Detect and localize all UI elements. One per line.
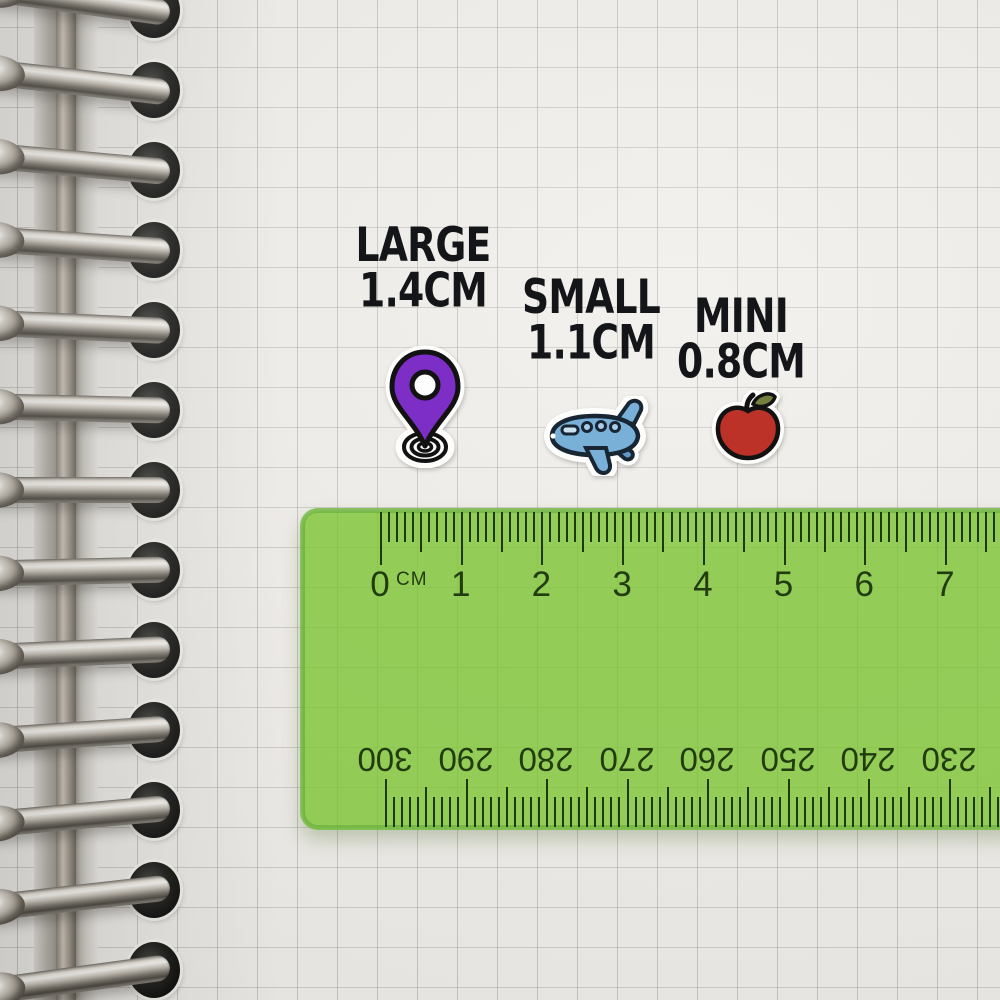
ruler-top-tick [945, 512, 947, 565]
ruler-bottom-tick [522, 797, 524, 827]
ruler-bottom-tick [973, 797, 975, 827]
ruler-bottom-tick [699, 797, 701, 827]
ruler-bottom-tick [570, 797, 572, 827]
ruler-bottom-tick [828, 787, 830, 827]
ruler-bottom-tick [594, 797, 596, 827]
ruler-bottom-tick [932, 797, 934, 827]
ruler-top-tick [590, 512, 592, 542]
ruler-mm-number: 290 [438, 740, 493, 778]
ruler-bottom-tick [667, 787, 669, 827]
ruler-cm-number: 4 [693, 565, 712, 605]
ruler-top-tick [598, 512, 600, 542]
ruler-bottom-tick [997, 797, 999, 827]
ruler-bottom-tick [747, 787, 749, 827]
label-large-name: LARGE [356, 222, 491, 268]
ruler-bottom-tick [409, 797, 411, 827]
ruler-bottom-tick [876, 797, 878, 827]
ruler-top-tick [816, 512, 818, 542]
ruler-top-tick [549, 512, 551, 542]
ruler-bottom-tick [554, 797, 556, 827]
ruler-top-tick [727, 512, 729, 542]
ruler-cm-number: 3 [612, 565, 631, 605]
spiral-coil [0, 477, 170, 503]
apple-sticker [705, 390, 791, 468]
ruler-top-tick [832, 512, 834, 542]
ruler-bottom-tick [796, 797, 798, 827]
label-mini-size: 0.8CM [677, 339, 805, 385]
ruler-bottom-tick [836, 797, 838, 827]
ruler-mm-number: 240 [840, 740, 895, 778]
ruler-top-tick [703, 512, 705, 565]
ruler-bottom-tick [441, 797, 443, 827]
ruler-bottom-tick [457, 797, 459, 827]
plane-cockpit-window [562, 426, 578, 434]
ruler-top-tick [784, 512, 786, 565]
ruler-top-tick [654, 512, 656, 542]
ruler-bottom-tick [949, 779, 951, 827]
ruler-top-tick [905, 512, 907, 552]
ruler-bottom-tick [860, 797, 862, 827]
ruler-top-tick [695, 512, 697, 542]
ruler-bottom-tick [916, 797, 918, 827]
ruler-bottom-tick [562, 797, 564, 827]
ruler-bottom-tick [474, 797, 476, 827]
ruler-bottom-tick [417, 797, 419, 827]
ruler-top-tick [913, 512, 915, 542]
airplane-sticker [540, 396, 652, 476]
ruler-top-tick [420, 512, 422, 552]
ruler-top-tick [541, 512, 543, 565]
ruler-top-tick [396, 512, 398, 542]
ruler-top-tick [558, 512, 560, 542]
ruler-cm-number: 2 [532, 565, 551, 605]
ruler-bottom-tick [900, 797, 902, 827]
ruler-mm-number: 300 [357, 740, 412, 778]
ruler-top-tick [985, 512, 987, 552]
ruler-top-tick [630, 512, 632, 542]
label-large-size: 1.4CM [356, 268, 491, 314]
label-large: LARGE 1.4CM [356, 222, 491, 314]
pin-hole [412, 372, 438, 398]
ruler-top-tick [864, 512, 866, 565]
ruler-cm-number: 7 [935, 565, 954, 605]
ruler-bottom-tick [868, 779, 870, 827]
ruler-top-tick [969, 512, 971, 542]
ruler-top-tick [517, 512, 519, 542]
ruler-top-tick [792, 512, 794, 542]
ruler-top-tick [775, 512, 777, 542]
ruler-bottom-tick [498, 797, 500, 827]
ruler-top-tick [953, 512, 955, 542]
ruler-bottom-tick [530, 797, 532, 827]
ruler-top-tick [743, 512, 745, 552]
ruler-top-tick [574, 512, 576, 542]
ruler-bottom-tick [538, 797, 540, 827]
ruler-top-tick [461, 512, 463, 565]
ruler-top-tick [856, 512, 858, 542]
ruler-bottom-tick [433, 797, 435, 827]
ruler-bottom-tick [627, 779, 629, 827]
ruler-top-tick [453, 512, 455, 542]
ruler-top-tick [880, 512, 882, 542]
ruler-bottom-tick [763, 797, 765, 827]
ruler-top-tick [477, 512, 479, 542]
ruler-mm-number: 280 [518, 740, 573, 778]
ruler-top-tick [808, 512, 810, 542]
ruler-bottom-tick [940, 797, 942, 827]
ruler-top-tick [485, 512, 487, 542]
label-mini-name: MINI [677, 293, 805, 339]
ruler-bottom-tick [771, 797, 773, 827]
ruler-top-tick [719, 512, 721, 542]
ruler-top-tick [888, 512, 890, 542]
ruler-bottom-tick [618, 797, 620, 827]
ruler-bottom-tick [659, 797, 661, 827]
ruler-cm-number: 0 [370, 565, 389, 605]
ruler-bottom-tick [892, 797, 894, 827]
ruler-bottom-tick [651, 797, 653, 827]
ruler-top-tick [800, 512, 802, 542]
ruler-top-tick [436, 512, 438, 542]
ruler-bottom-tick [731, 797, 733, 827]
ruler-bottom-tick [812, 797, 814, 827]
ruler-bottom-tick [844, 797, 846, 827]
ruler-bottom-tick [989, 787, 991, 827]
ruler-top-tick [679, 512, 681, 542]
ruler-top-tick [428, 512, 430, 542]
ruler-bottom-tick [715, 797, 717, 827]
ruler-top-tick [404, 512, 406, 542]
ruler-bottom-tick [965, 797, 967, 827]
ruler-bottom-tick [957, 797, 959, 827]
ruler-bottom-tick [466, 779, 468, 827]
ruler-top-tick [937, 512, 939, 542]
ruler-top-tick [566, 512, 568, 542]
ruler-bottom-tick [820, 797, 822, 827]
ruler-bottom-tick [755, 797, 757, 827]
ruler-bottom-tick [683, 797, 685, 827]
ruler-bottom-tick [884, 797, 886, 827]
ruler-top-tick [735, 512, 737, 542]
plane-window-2 [597, 422, 606, 431]
ruler-top-tick [509, 512, 511, 542]
ruler-top-tick [388, 512, 390, 542]
ruler-top-tick [646, 512, 648, 542]
label-small-size: 1.1CM [522, 320, 660, 366]
ruler-bottom-tick [490, 797, 492, 827]
notebook-photo: LARGE 1.4CM SMALL 1.1CM MINI 0.8CM [0, 0, 1000, 1000]
ruler-bottom-tick [425, 787, 427, 827]
ruler-top-tick [662, 512, 664, 552]
ruler-bottom-tick [643, 797, 645, 827]
ruler-bottom-tick [393, 797, 395, 827]
spiral-coil [0, 393, 170, 424]
ruler-bottom-tick [449, 797, 451, 827]
ruler-bottom-tick [723, 797, 725, 827]
ruler-top-tick [961, 512, 963, 542]
ruler-top-tick [525, 512, 527, 542]
ruler-top-tick [622, 512, 624, 565]
ruler-bottom-tick [514, 797, 516, 827]
ruler-top-tick [840, 512, 842, 542]
spiral-coil [0, 556, 170, 587]
ruler-bottom-tick [578, 797, 580, 827]
ruler-top-tick [501, 512, 503, 552]
ruler-top-tick [711, 512, 713, 542]
ruler-bottom-tick [804, 797, 806, 827]
ruler-top-tick [606, 512, 608, 542]
ruler-bottom-tick [739, 797, 741, 827]
ruler-top-tick [759, 512, 761, 542]
ruler-bottom-tick [482, 797, 484, 827]
ruler-cm-number: 1 [451, 565, 470, 605]
ruler-top-tick [445, 512, 447, 542]
ruler-mm-number: 230 [921, 740, 976, 778]
ruler-bottom-tick [675, 797, 677, 827]
ruler-top-tick [767, 512, 769, 542]
ruler-top-tick [977, 512, 979, 542]
ruler-bottom-tick [788, 779, 790, 827]
ruler-bottom-tick [602, 797, 604, 827]
ruler-top-tick [380, 512, 382, 565]
ruler-top-tick [872, 512, 874, 542]
ruler-cm-number: 5 [774, 565, 793, 605]
ruler-bottom-tick [385, 779, 387, 827]
ruler: CM 01234567300290280270260250240230 [300, 508, 1000, 830]
ruler-bottom-tick [586, 787, 588, 827]
ruler-mm-number: 250 [760, 740, 815, 778]
label-small: SMALL 1.1CM [522, 274, 660, 366]
ruler-bottom-tick [691, 797, 693, 827]
ruler-top-tick [469, 512, 471, 542]
ruler-top-tick [993, 512, 995, 542]
ruler-bottom-tick [981, 797, 983, 827]
ruler-bottom-tick [924, 797, 926, 827]
plane-window-1 [583, 423, 592, 432]
ruler-bottom-tick [707, 779, 709, 827]
ruler-top-tick [848, 512, 850, 542]
ruler-top-tick [638, 512, 640, 542]
ruler-bottom-tick [852, 797, 854, 827]
ruler-top-tick [614, 512, 616, 542]
ruler-top-tick [412, 512, 414, 542]
ruler-bottom-tick [401, 797, 403, 827]
ruler-top-tick [671, 512, 673, 542]
ruler-top-tick [533, 512, 535, 542]
ruler-top-tick [582, 512, 584, 552]
ruler-bottom-tick [610, 797, 612, 827]
ruler-unit-label: CM [396, 569, 428, 591]
label-small-name: SMALL [522, 274, 660, 320]
ruler-top-tick [929, 512, 931, 542]
apple-body [718, 408, 778, 458]
ruler-bottom-tick [506, 787, 508, 827]
label-mini: MINI 0.8CM [677, 293, 805, 385]
ruler-top-tick [493, 512, 495, 542]
ruler-top-tick [751, 512, 753, 542]
ruler-cm-number: 6 [854, 565, 873, 605]
ruler-top-tick [921, 512, 923, 542]
ruler-top-tick [896, 512, 898, 542]
plane-window-3 [611, 423, 620, 432]
ruler-bottom-tick [546, 779, 548, 827]
ruler-bottom-tick [779, 797, 781, 827]
plane-nose-glint [550, 433, 555, 438]
ruler-bottom-tick [908, 787, 910, 827]
ruler-bottom-tick [635, 797, 637, 827]
ruler-mm-number: 260 [679, 740, 734, 778]
ruler-top-tick [687, 512, 689, 542]
ruler-top-tick [824, 512, 826, 552]
spiral-binding [0, 0, 1000, 1000]
ruler-mm-number: 270 [599, 740, 654, 778]
location-pin-sticker [381, 344, 469, 468]
